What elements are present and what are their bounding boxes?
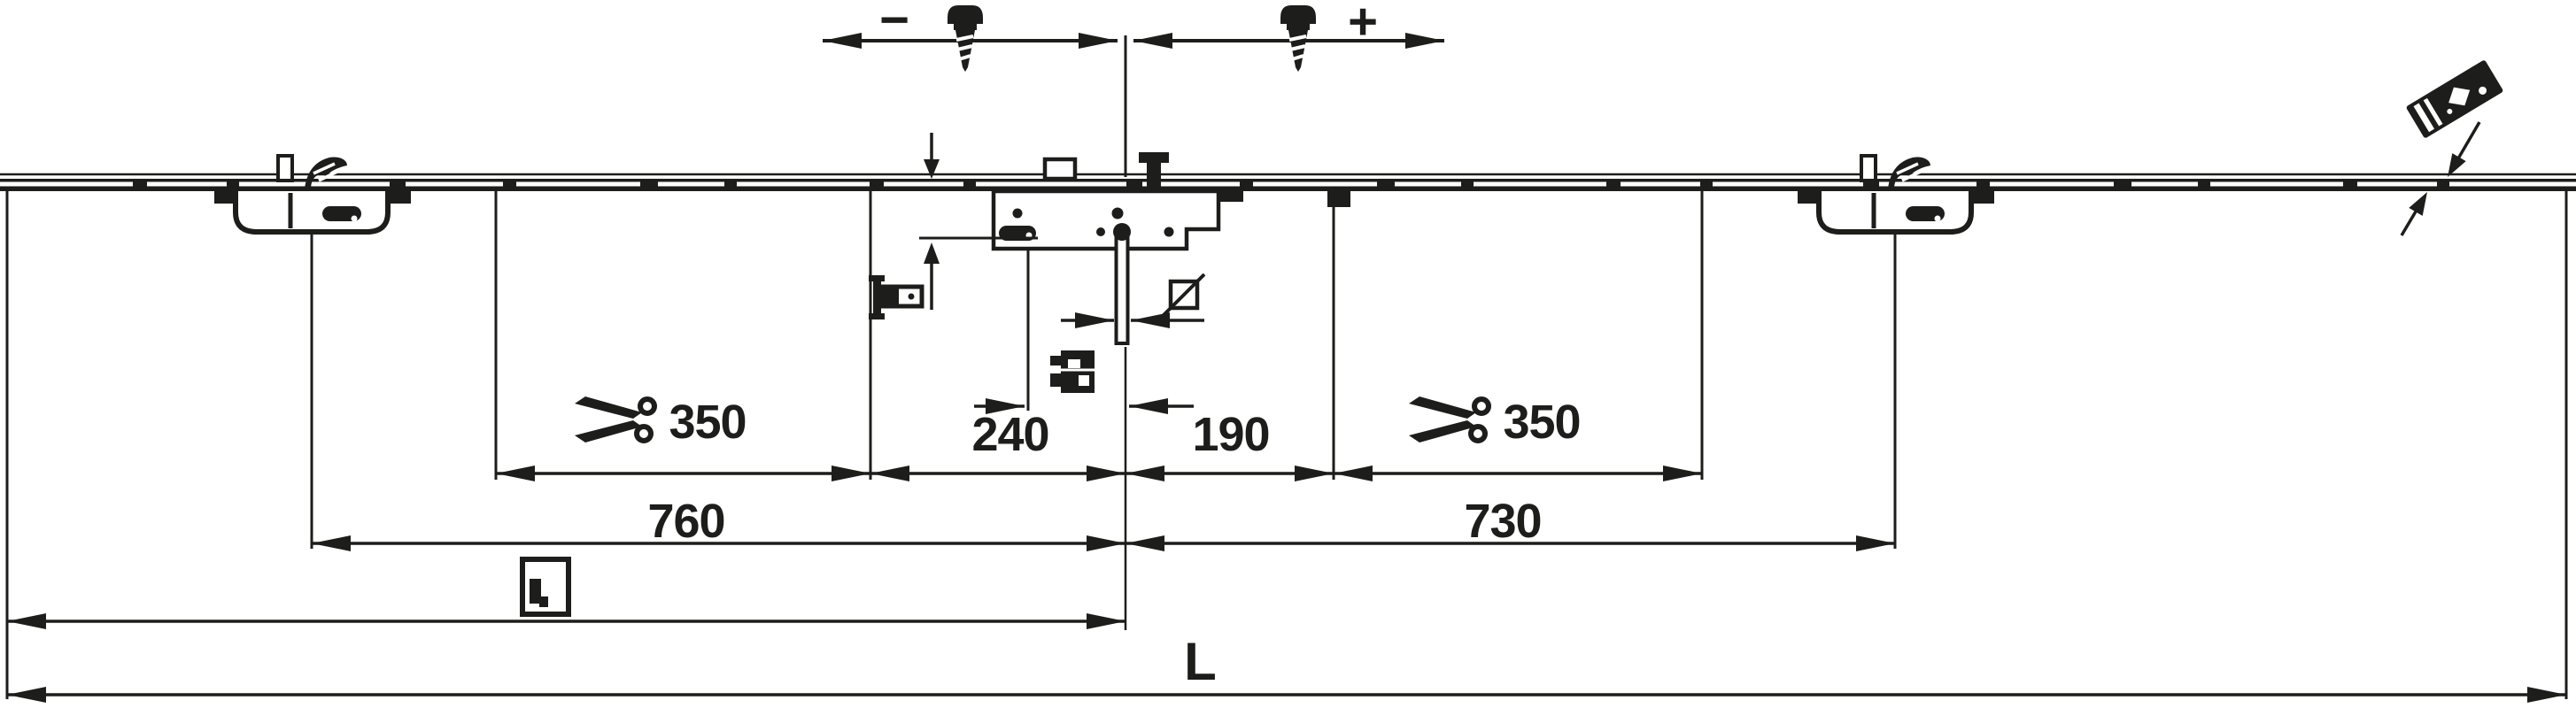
gearbox-hole <box>1013 209 1023 219</box>
faceplate-down-arrow <box>924 133 940 179</box>
dimension-row-handle <box>7 559 1126 621</box>
spindle-hub <box>1113 223 1131 241</box>
dim-label-190: 190 <box>1178 411 1284 458</box>
scissors-icon <box>573 396 661 448</box>
gearbox-hole <box>1164 227 1174 237</box>
square-spindle-icon <box>1164 274 1204 315</box>
left-keeper <box>214 156 411 232</box>
gearbox-hole <box>1112 208 1124 219</box>
profile-groove-icon <box>869 275 922 319</box>
gearbox-hole <box>1096 227 1105 236</box>
dim-label-760: 760 <box>629 497 744 545</box>
right-keeper <box>1798 156 1994 232</box>
insert-arrow-up <box>2402 212 2416 235</box>
drawing-linework <box>0 0 2576 708</box>
screw-icon <box>948 5 983 72</box>
minus-adjust-label: − <box>872 0 917 46</box>
dim-label-cut-left: 350 <box>565 396 754 448</box>
gearbox-top-tab <box>1045 159 1075 179</box>
striker-plate-icon <box>2402 59 2503 235</box>
dim-label-total-length: L <box>1169 635 1231 689</box>
rail-connector-tab <box>1220 191 1243 202</box>
dim-value: 350 <box>1503 398 1580 446</box>
rail-connector-tab <box>1327 191 1350 207</box>
screw-icon <box>1280 5 1316 72</box>
dim-value: 350 <box>669 398 746 446</box>
technical-drawing-canvas: − + 350 240 190 350 760 730 L <box>0 0 2576 708</box>
plus-adjust-label: + <box>1341 0 1385 48</box>
profile-section-icon <box>1050 350 1095 393</box>
spindle-rod <box>1117 235 1128 343</box>
window-handle-icon <box>522 559 569 614</box>
scissors-icon <box>1407 396 1496 448</box>
dim-label-730: 730 <box>1445 497 1560 545</box>
axis-up-arrow <box>924 242 940 264</box>
dim-label-cut-right: 350 <box>1399 396 1589 448</box>
dim-label-240: 240 <box>957 411 1064 458</box>
